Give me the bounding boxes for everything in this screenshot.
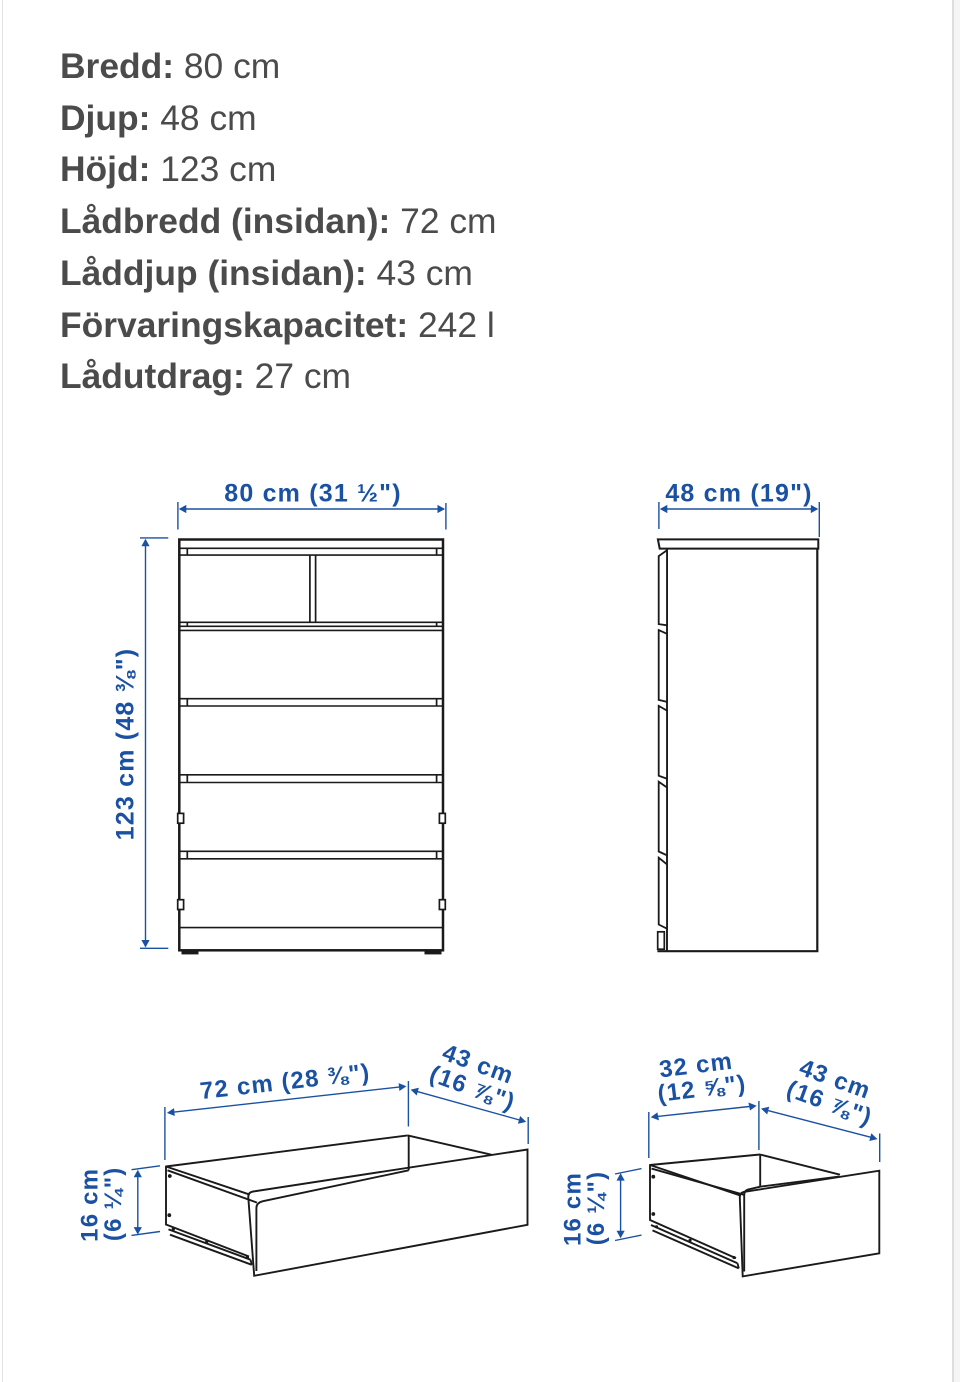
svg-text:43 cm(16 ⅞"): 43 cm(16 ⅞") [426,1038,527,1117]
svg-text:123 cm (48 ⅜"): 123 cm (48 ⅜") [112,648,140,841]
svg-text:72 cm (28 ⅜"): 72 cm (28 ⅜") [199,1059,372,1105]
svg-text:16 cm(6 ¼"): 16 cm(6 ¼") [560,1171,611,1246]
svg-text:48 cm (19"): 48 cm (19") [665,480,812,508]
svg-text:80 cm (31 ½"): 80 cm (31 ½") [224,480,402,508]
svg-text:16 cm(6 ¼"): 16 cm(6 ¼") [77,1166,128,1241]
svg-text:43 cm(16 ⅞"): 43 cm(16 ⅞") [783,1053,884,1132]
svg-text:32 cm(12 ⅝"): 32 cm(12 ⅝") [653,1046,748,1107]
